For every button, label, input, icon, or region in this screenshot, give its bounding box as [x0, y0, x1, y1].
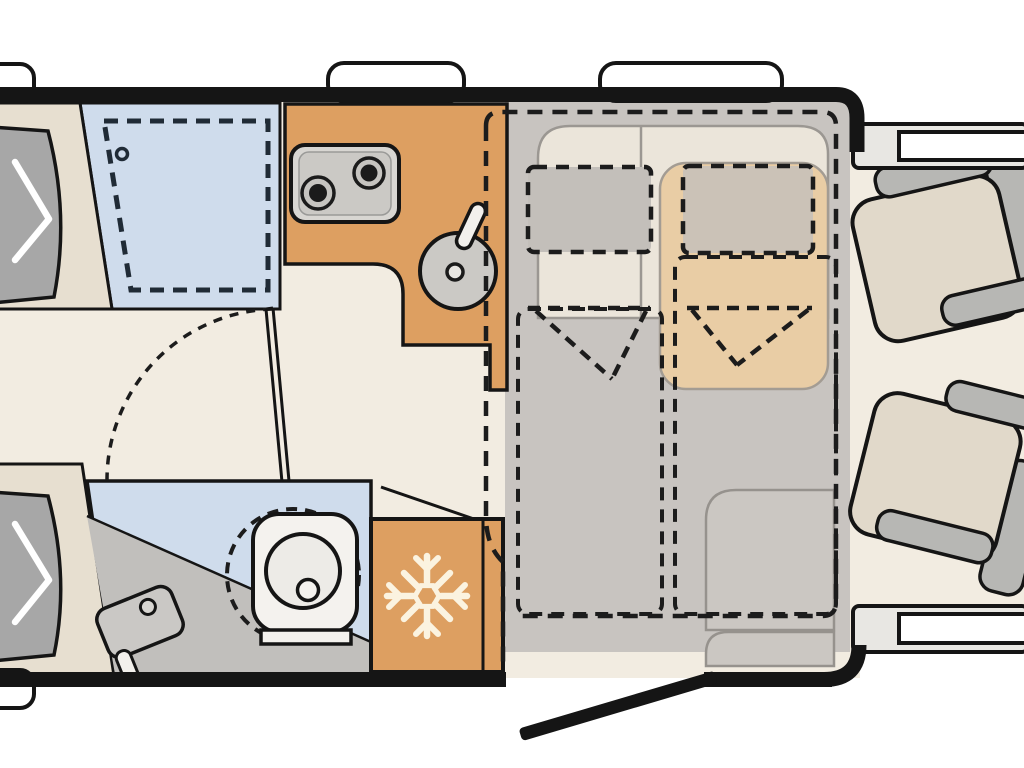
floorplan-canvas	[0, 0, 1024, 768]
dinette-right-backrest	[683, 166, 813, 253]
burner-right	[361, 165, 378, 182]
cab-bottom-outside	[860, 650, 1024, 680]
bed-bottom-pillow	[0, 492, 61, 661]
seat-base	[848, 171, 1024, 346]
burner-left	[309, 184, 327, 202]
bed-top-pillow	[0, 127, 61, 303]
wall-top	[0, 87, 832, 102]
hob-burners-icon	[291, 145, 399, 222]
wall-bottom-front	[704, 672, 832, 687]
toilet-icon	[253, 514, 357, 644]
floorplan-drawing	[0, 0, 1024, 768]
cab-door-bottom	[853, 606, 1024, 652]
washroom	[87, 481, 371, 689]
cab-door-window	[899, 132, 1024, 160]
entry-step-lower	[706, 632, 834, 666]
entry-door-open	[519, 671, 718, 741]
wall-bottom-rear	[0, 672, 506, 687]
cab-door-top	[853, 124, 1024, 168]
entry-step-upper	[706, 490, 834, 630]
cab-top-outside	[860, 96, 1024, 126]
shower-cubicle	[80, 103, 280, 309]
dinette-left-backrest	[528, 167, 651, 252]
toilet-flush	[298, 580, 319, 601]
sink-drain	[447, 264, 463, 280]
cab-door-window	[899, 614, 1024, 643]
toilet-base	[261, 630, 351, 644]
